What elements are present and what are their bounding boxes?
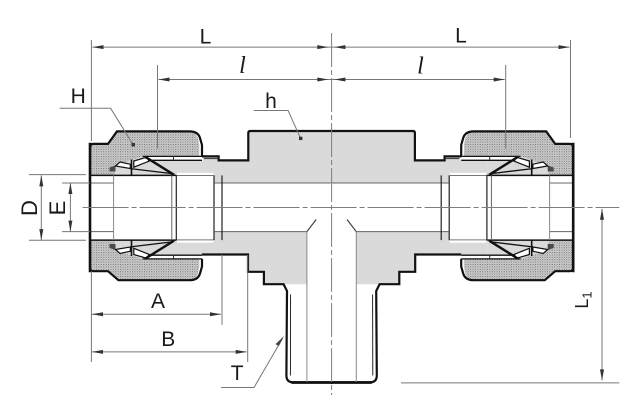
svg-text:L: L (200, 26, 212, 49)
svg-text:l: l (417, 54, 424, 80)
svg-text:T: T (231, 362, 244, 385)
svg-text:H: H (71, 85, 86, 108)
svg-text:E: E (45, 201, 70, 216)
svg-text:D: D (17, 200, 42, 216)
svg-text:L: L (455, 25, 467, 48)
svg-text:h: h (265, 90, 277, 113)
svg-text:l: l (239, 53, 246, 79)
svg-text:B: B (161, 328, 175, 351)
svg-text:A: A (151, 290, 165, 313)
